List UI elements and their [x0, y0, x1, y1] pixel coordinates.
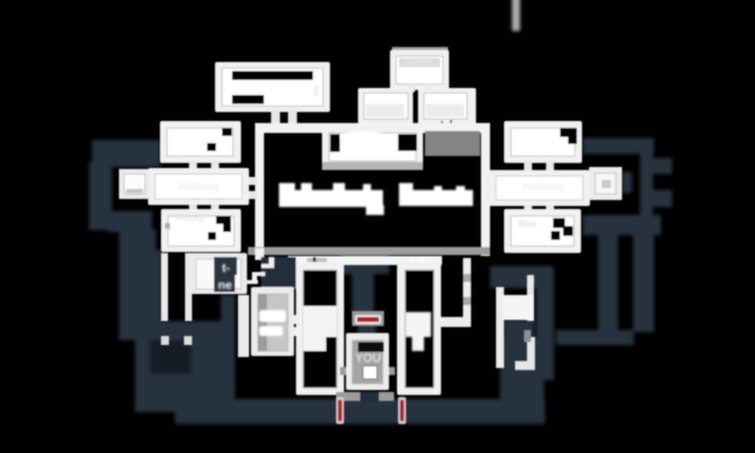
- svg-text:Hallway: Hallway: [524, 181, 566, 193]
- svg-text:t-: t-: [222, 261, 230, 275]
- svg-text:ne: ne: [218, 278, 232, 292]
- svg-text:Lobby: Lobby: [406, 56, 433, 66]
- svg-text:Rec: Rec: [519, 219, 538, 230]
- svg-text:YOU: YOU: [355, 351, 381, 365]
- svg-text:Rooky: Rooky: [175, 212, 206, 223]
- svg-text:Hallway: Hallway: [179, 181, 221, 193]
